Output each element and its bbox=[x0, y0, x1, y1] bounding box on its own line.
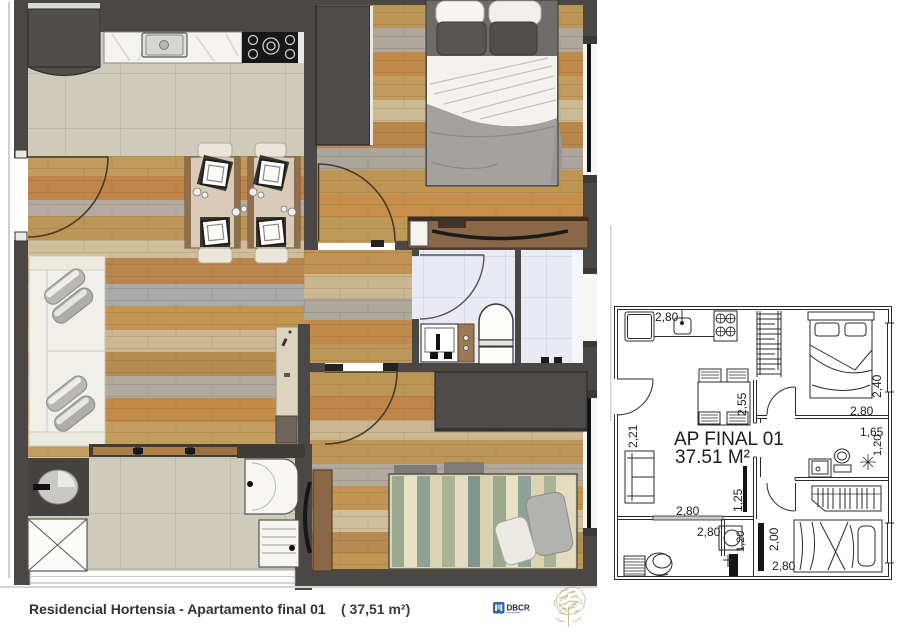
svg-text:1,25: 1,25 bbox=[731, 488, 745, 512]
svg-text:( 37,51 m²): ( 37,51 m²) bbox=[341, 601, 410, 617]
svg-text:Residencial Hortensia - Aparta: Residencial Hortensia - Apartamento fina… bbox=[29, 601, 326, 617]
svg-text:2,80: 2,80 bbox=[772, 559, 796, 573]
svg-text:2,80: 2,80 bbox=[850, 404, 874, 418]
svg-text:2,80: 2,80 bbox=[697, 525, 721, 539]
svg-text:DBCR: DBCR bbox=[507, 604, 530, 613]
svg-text:2,80: 2,80 bbox=[655, 310, 679, 324]
svg-text:2,21: 2,21 bbox=[626, 424, 640, 448]
svg-text:2,00: 2,00 bbox=[767, 527, 781, 551]
svg-text:1,20: 1,20 bbox=[735, 531, 747, 552]
svg-text:37.51 M²: 37.51 M² bbox=[675, 447, 750, 468]
svg-text:1,20: 1,20 bbox=[872, 435, 884, 456]
svg-text:2,55: 2,55 bbox=[735, 392, 749, 416]
svg-text:2,80: 2,80 bbox=[676, 504, 700, 518]
svg-text:2,40: 2,40 bbox=[870, 374, 884, 398]
